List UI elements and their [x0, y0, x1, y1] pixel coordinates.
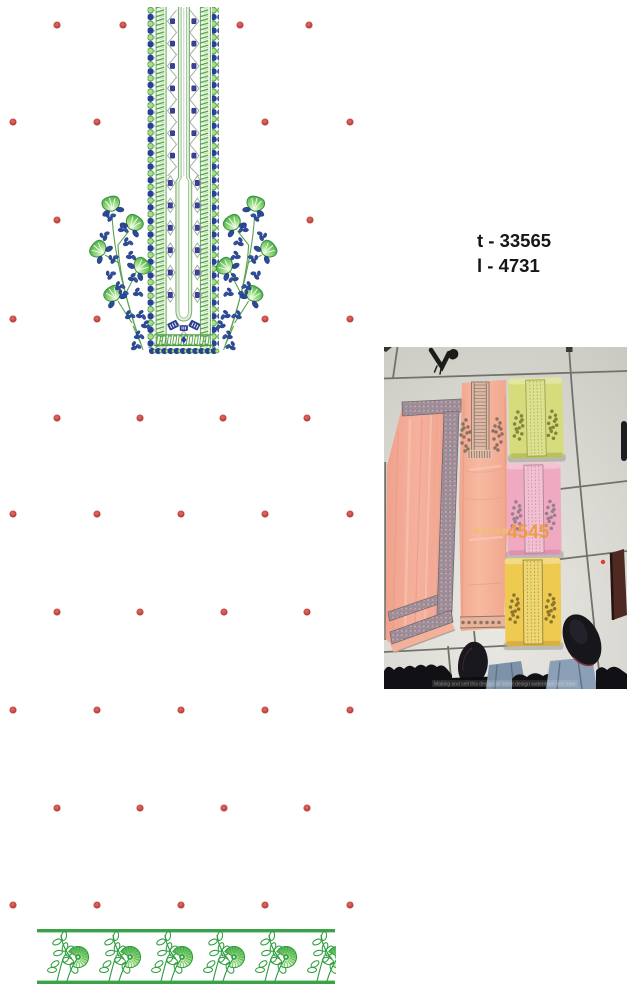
svg-text:l - 4731: l - 4731 — [477, 255, 540, 276]
svg-text:4545: 4545 — [507, 522, 550, 543]
svg-text:Making and sell this design al: Making and sell this design all latest d… — [434, 682, 576, 688]
svg-text:t - 33565: t - 33565 — [477, 230, 551, 251]
